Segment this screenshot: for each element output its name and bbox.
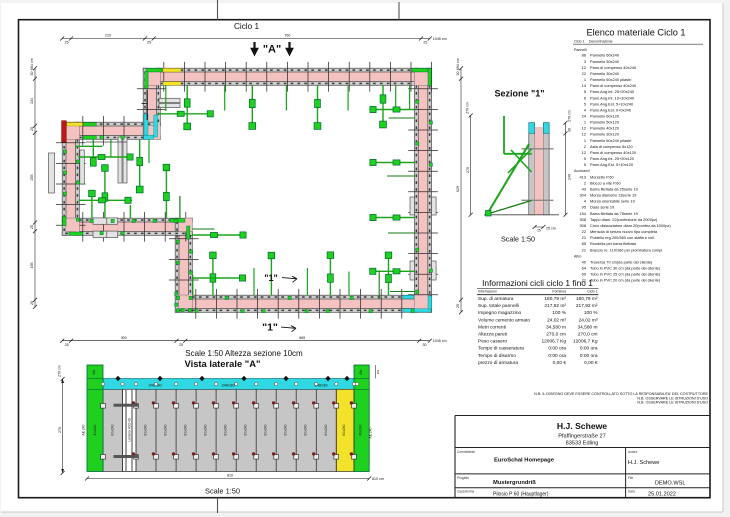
- svg-text:34,580 m: 34,580 m: [577, 324, 597, 330]
- svg-text:Morsetto P.60: Morsetto P.60: [590, 174, 615, 179]
- svg-text:Pann.Ang.Est. 0+0x240: Pann.Ang.Est. 0+0x240: [590, 107, 632, 112]
- svg-text:Metri correnti: Metri correnti: [478, 324, 506, 330]
- svg-text:Pfaffingerstraße 27: Pfaffingerstraße 27: [558, 434, 605, 440]
- svg-text:0:00 ora: 0:00 ora: [580, 353, 598, 359]
- svg-text:AE 240: AE 240: [82, 424, 86, 435]
- svg-text:40x.: 40x.: [359, 369, 363, 375]
- svg-text:Progetto: Progetto: [457, 476, 469, 480]
- svg-text:Pann.Ang.Int. 10+10x240: Pann.Ang.Int. 10+10x240: [590, 95, 635, 100]
- svg-text:95: 95: [582, 205, 586, 210]
- svg-text:Fornitura: Fornitura: [552, 290, 566, 294]
- svg-text:665: 665: [299, 336, 305, 340]
- svg-text:Pilosio P 60 (Hauptlager): Pilosio P 60 (Hauptlager): [493, 491, 549, 497]
- svg-text:Pannello 50x120: Pannello 50x120: [590, 120, 620, 125]
- svg-text:154: 154: [580, 211, 587, 216]
- svg-text:AE 240: AE 240: [368, 427, 372, 438]
- svg-text:Denominazione: Denominazione: [589, 39, 613, 43]
- svg-text:Sezione "1": Sezione "1": [494, 89, 544, 99]
- svg-text:Pann.di compenso 40x120: Pann.di compenso 40x120: [590, 150, 637, 155]
- svg-text:Informazioni cicli ciclo 1 fi: Informazioni cicli ciclo 1 fino 1: [482, 278, 593, 288]
- svg-text:Altezza pareti: Altezza pareti: [478, 332, 507, 338]
- svg-text:5: 5: [584, 89, 586, 94]
- svg-text:Tubo in PVC 25 cm (da parte de: Tubo in PVC 25 cm (da parte del cliente): [590, 272, 661, 277]
- svg-text:prezzo di armatura: prezzo di armatura: [478, 360, 518, 366]
- svg-text:810: 810: [227, 474, 233, 478]
- svg-text:308: 308: [580, 223, 587, 228]
- svg-text:Pannello 30x240: Pannello 30x240: [590, 71, 620, 76]
- svg-text:Pannello 50x240: Pannello 50x240: [590, 59, 620, 64]
- svg-text:85: 85: [582, 241, 586, 246]
- svg-text:Impegno magazzino: Impegno magazzino: [478, 310, 522, 316]
- svg-text:Lamiera 40/2-40: Lamiera 40/2-40: [128, 418, 132, 441]
- svg-text:N.B. OSSERVARE LE ISTRUZIONI D: N.B. OSSERVARE LE ISTRUZIONI D'USO: [637, 400, 708, 404]
- svg-text:134: 134: [30, 98, 34, 104]
- svg-text:195: 195: [30, 263, 34, 269]
- svg-text:217,92 m²: 217,92 m²: [576, 303, 598, 309]
- svg-text:6: 6: [584, 95, 586, 100]
- svg-text:Scale 1:50: Scale 1:50: [205, 487, 240, 496]
- svg-text:1: 1: [584, 77, 586, 82]
- svg-text:Barra filettata da 75serie 19: Barra filettata da 75serie 19: [590, 211, 638, 216]
- svg-text:240x30: 240x30: [221, 382, 235, 387]
- svg-text:12: 12: [582, 150, 586, 155]
- svg-text:21: 21: [582, 247, 586, 252]
- svg-text:270,0 cm: 270,0 cm: [578, 332, 598, 338]
- svg-text:Ciclo 1: Ciclo 1: [574, 39, 584, 43]
- svg-text:270 cm: 270 cm: [567, 110, 571, 122]
- svg-text:Cono distanziatore diam.20(con: Cono distanziatore diam.20(confez.da 100…: [590, 223, 671, 228]
- svg-text:Tubo in PVC 30 cm (da parte de: Tubo in PVC 30 cm (da parte del cliente): [590, 266, 661, 271]
- svg-text:Scale 1:50 Altezza sezione 1: Scale 1:50 Altezza sezione 10cm: [185, 349, 303, 358]
- svg-text:24,02 m³: 24,02 m³: [579, 317, 598, 323]
- svg-text:Traversa 70 cm(da parte del cl: Traversa 70 cm(da parte del cliente): [590, 259, 653, 264]
- svg-text:H.J. Schewe: H.J. Schewe: [557, 421, 607, 431]
- svg-text:Morsa diametro 13serie 19: Morsa diametro 13serie 19: [590, 193, 636, 198]
- svg-text:308: 308: [580, 217, 587, 222]
- svg-text:270 cm: 270 cm: [466, 102, 470, 114]
- svg-text:H.J. Schewe: H.J. Schewe: [628, 460, 659, 466]
- svg-text:12: 12: [582, 126, 586, 131]
- svg-text:DEMO.WSL: DEMO.WSL: [655, 481, 685, 487]
- svg-text:Pann.Ang.Est. 5+10x240: Pann.Ang.Est. 5+10x240: [590, 101, 634, 106]
- svg-text:Rondella per barra filettata: Rondella per barra filettata: [590, 241, 637, 246]
- svg-text:12006,7 Kg: 12006,7 Kg: [573, 339, 598, 345]
- svg-text:Pann.Ang.Est. 5+10x120: Pann.Ang.Est. 5+10x120: [590, 162, 634, 167]
- svg-text:0,00 €: 0,00 €: [553, 360, 567, 366]
- svg-text:Tubo in PVC 20 cm (da parte de: Tubo in PVC 20 cm (da parte del cliente): [590, 278, 661, 283]
- svg-text:60x240: 60x240: [164, 424, 168, 435]
- svg-text:43: 43: [582, 187, 586, 192]
- svg-text:60x240: 60x240: [304, 424, 308, 435]
- svg-text:Vista laterale "A": Vista laterale "A": [185, 358, 261, 369]
- svg-text:25: 25: [65, 343, 69, 347]
- svg-text:EuroSchal Homepage: EuroSchal Homepage: [494, 458, 555, 464]
- svg-text:270: 270: [58, 427, 62, 433]
- svg-text:"1": "1": [264, 273, 278, 283]
- svg-text:60x240: 60x240: [244, 424, 248, 435]
- svg-text:Mustergrundriß: Mustergrundriß: [493, 480, 536, 486]
- svg-text:Peso cassero: Peso cassero: [478, 339, 507, 345]
- svg-text:83533 Edling: 83533 Edling: [566, 441, 599, 447]
- svg-text:Braccio re. 110/160 per piomba: Braccio re. 110/160 per piombatura compl…: [590, 247, 663, 252]
- svg-text:304: 304: [580, 193, 587, 198]
- svg-text:69: 69: [582, 272, 586, 277]
- svg-text:Data: Data: [628, 489, 635, 493]
- svg-text:"A": "A": [263, 44, 281, 56]
- svg-text:Pann.Ang.Int. 25+20x120: Pann.Ang.Int. 25+20x120: [590, 156, 635, 161]
- svg-text:Informazioni: Informazioni: [478, 290, 497, 294]
- svg-text:30: 30: [567, 128, 571, 132]
- svg-text:22: 22: [582, 229, 586, 234]
- svg-text:Elenco materiale Ciclo 1: Elenco materiale Ciclo 1: [586, 28, 685, 38]
- svg-text:Dado serie 19: Dado serie 19: [590, 205, 614, 210]
- svg-text:25: 25: [179, 343, 183, 347]
- svg-text:30: 30: [30, 72, 34, 76]
- svg-text:Puntello reg.200/360 con staff: Puntello reg.200/360 con staffa e coll.: [590, 235, 655, 240]
- svg-text:760: 760: [284, 34, 290, 38]
- svg-text:"1": "1": [262, 322, 278, 334]
- svg-text:270 cm: 270 cm: [57, 365, 61, 377]
- svg-text:3: 3: [584, 59, 586, 64]
- svg-text:25: 25: [147, 41, 151, 45]
- svg-text:25: 25: [423, 41, 427, 45]
- svg-text:0:00 ora: 0:00 ora: [548, 353, 566, 359]
- svg-text:Volume cemento armato: Volume cemento armato: [478, 317, 530, 323]
- svg-text:86: 86: [582, 53, 586, 58]
- svg-text:Cassaforma: Cassaforma: [457, 489, 474, 493]
- svg-text:Pannello 60x240 pilastri: Pannello 60x240 pilastri: [590, 77, 631, 82]
- svg-text:60x240: 60x240: [204, 424, 208, 435]
- svg-text:Tempo di casseratura: Tempo di casseratura: [478, 346, 524, 352]
- svg-text:2: 2: [584, 144, 586, 149]
- svg-text:Sup. di armatura: Sup. di armatura: [478, 296, 514, 302]
- svg-text:Pannello 60x240 pilastri: Pannello 60x240 pilastri: [590, 138, 631, 143]
- svg-text:100 %: 100 %: [552, 310, 566, 316]
- svg-text:60x240: 60x240: [284, 424, 288, 435]
- svg-text:40x.: 40x.: [92, 369, 96, 375]
- svg-text:40x240: 40x240: [93, 424, 97, 435]
- svg-text:255: 255: [30, 175, 34, 181]
- svg-text:20: 20: [30, 127, 34, 131]
- svg-text:34,580 m: 34,580 m: [546, 324, 566, 330]
- svg-text:60x240: 60x240: [144, 424, 148, 435]
- svg-text:30: 30: [456, 72, 460, 76]
- svg-text:270,0 cm: 270,0 cm: [546, 332, 566, 338]
- svg-text:21: 21: [582, 235, 586, 240]
- svg-text:180,79 m²: 180,79 m²: [576, 296, 598, 302]
- svg-text:1045 cm: 1045 cm: [433, 37, 447, 41]
- svg-text:25.01.2022: 25.01.2022: [648, 492, 676, 498]
- svg-text:60x240: 60x240: [342, 424, 346, 435]
- svg-text:413: 413: [580, 174, 587, 179]
- svg-text:25: 25: [65, 41, 69, 45]
- svg-text:664 cm: 664 cm: [30, 58, 34, 70]
- svg-text:Pannello 40x120: Pannello 40x120: [590, 126, 620, 131]
- svg-text:1045 cm: 1045 cm: [433, 339, 447, 343]
- svg-text:Ciclo 1: Ciclo 1: [234, 22, 259, 31]
- svg-text:Autore: Autore: [628, 450, 638, 454]
- svg-text:Committente: Committente: [457, 450, 475, 454]
- svg-text:12: 12: [582, 65, 586, 70]
- svg-text:Pannello 60x240: Pannello 60x240: [590, 53, 620, 58]
- svg-text:60x240: 60x240: [224, 424, 228, 435]
- svg-text:40x240: 40x240: [359, 424, 363, 435]
- svg-text:2: 2: [584, 180, 586, 185]
- svg-text:25: 25: [456, 304, 460, 308]
- svg-text:270: 270: [466, 167, 470, 173]
- svg-text:810 cm: 810 cm: [372, 477, 384, 481]
- svg-text:40x: 40x: [376, 369, 380, 374]
- svg-text:300: 300: [121, 336, 127, 340]
- svg-text:Scale 1:50: Scale 1:50: [501, 235, 535, 244]
- svg-text:Tappo diam. 22(confezione da 2: Tappo diam. 22(confezione da 2000pz): [590, 217, 658, 222]
- svg-text:100 %: 100 %: [584, 310, 598, 316]
- svg-text:1: 1: [584, 120, 586, 125]
- svg-text:694 cm: 694 cm: [456, 58, 460, 70]
- svg-text:Asta di compenso 5x120: Asta di compenso 5x120: [590, 144, 633, 149]
- svg-text:Altro: Altro: [574, 254, 581, 258]
- svg-text:Accessori: Accessori: [574, 169, 590, 173]
- svg-text:60x240: 60x240: [264, 424, 268, 435]
- svg-text:5: 5: [584, 156, 586, 161]
- svg-text:Pann.di compenso 40x240: Pann.di compenso 40x240: [590, 65, 637, 70]
- svg-text:60x240: 60x240: [324, 424, 328, 435]
- svg-text:Tempo di disarmo: Tempo di disarmo: [478, 353, 516, 359]
- svg-text:60x240: 60x240: [111, 424, 115, 435]
- svg-text:Pannello 30x120: Pannello 30x120: [590, 132, 620, 137]
- svg-text:20: 20: [30, 301, 34, 305]
- svg-text:Pannello 60x120: Pannello 60x120: [590, 114, 620, 119]
- svg-text:25 cm: 25 cm: [546, 227, 556, 231]
- svg-text:Sup. totale pannelli: Sup. totale pannelli: [478, 303, 519, 309]
- svg-text:Pann.di compenso 40x240: Pann.di compenso 40x240: [590, 83, 637, 88]
- svg-text:60x240: 60x240: [184, 424, 188, 435]
- svg-text:Pannelli: Pannelli: [574, 48, 587, 52]
- svg-text:5: 5: [584, 101, 586, 106]
- svg-text:22: 22: [582, 71, 586, 76]
- svg-text:Morsa orientabile serie 19: Morsa orientabile serie 19: [590, 199, 635, 204]
- svg-text:0:00 ora: 0:00 ora: [548, 346, 566, 352]
- svg-text:217,92 m²: 217,92 m²: [544, 303, 566, 309]
- svg-text:Barra filettata da 25serie 19: Barra filettata da 25serie 19: [590, 187, 638, 192]
- svg-text:12: 12: [582, 132, 586, 137]
- svg-text:Pann.Ang.Int. 25+20x240: Pann.Ang.Int. 25+20x240: [590, 89, 635, 94]
- svg-text:240: 240: [567, 174, 571, 180]
- svg-text:30: 30: [423, 343, 427, 347]
- svg-text:24,02 m³: 24,02 m³: [547, 317, 566, 323]
- svg-text:Ciclo 1: Ciclo 1: [587, 290, 597, 294]
- svg-text:629: 629: [456, 186, 460, 192]
- svg-text:5: 5: [584, 162, 586, 167]
- svg-text:210: 210: [105, 34, 111, 38]
- svg-text:25: 25: [30, 225, 34, 229]
- svg-text:0,00 €: 0,00 €: [584, 360, 598, 366]
- svg-text:Blocco a vite P.60: Blocco a vite P.60: [590, 180, 621, 185]
- svg-text:1: 1: [584, 138, 586, 143]
- svg-text:12006,7 Kg: 12006,7 Kg: [541, 339, 566, 345]
- svg-text:File: File: [628, 476, 633, 480]
- svg-text:0:00 ora: 0:00 ora: [580, 346, 598, 352]
- svg-text:180,79 m²: 180,79 m²: [544, 296, 566, 302]
- svg-text:Mensola di serizio nuovo tipo: Mensola di serizio nuovo tipo completa: [590, 229, 658, 234]
- svg-text:25: 25: [537, 229, 541, 233]
